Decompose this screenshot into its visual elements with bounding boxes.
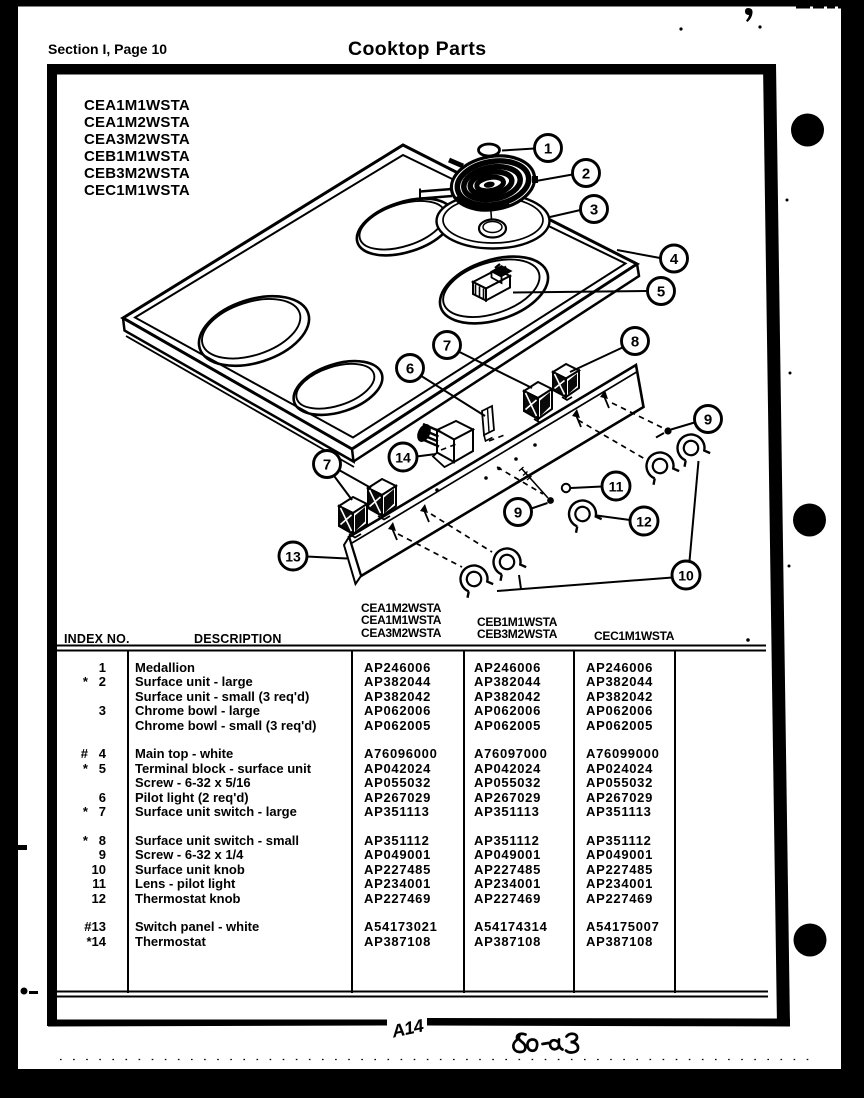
svg-text:11: 11 — [609, 479, 624, 495]
svg-text:9: 9 — [514, 505, 522, 522]
svg-text:7: 7 — [323, 457, 331, 474]
svg-text:3: 3 — [590, 202, 598, 219]
svg-text:2: 2 — [582, 166, 590, 183]
svg-text:7: 7 — [443, 338, 451, 355]
svg-text:10: 10 — [678, 568, 694, 584]
svg-text:8: 8 — [631, 334, 639, 351]
svg-text:4: 4 — [670, 251, 679, 268]
svg-text:12: 12 — [636, 514, 652, 530]
svg-text:5: 5 — [657, 284, 665, 301]
svg-text:13: 13 — [285, 549, 301, 565]
svg-text:14: 14 — [395, 450, 411, 466]
svg-text:9: 9 — [704, 412, 712, 429]
svg-text:1: 1 — [544, 141, 552, 158]
svg-text:6: 6 — [406, 361, 414, 378]
